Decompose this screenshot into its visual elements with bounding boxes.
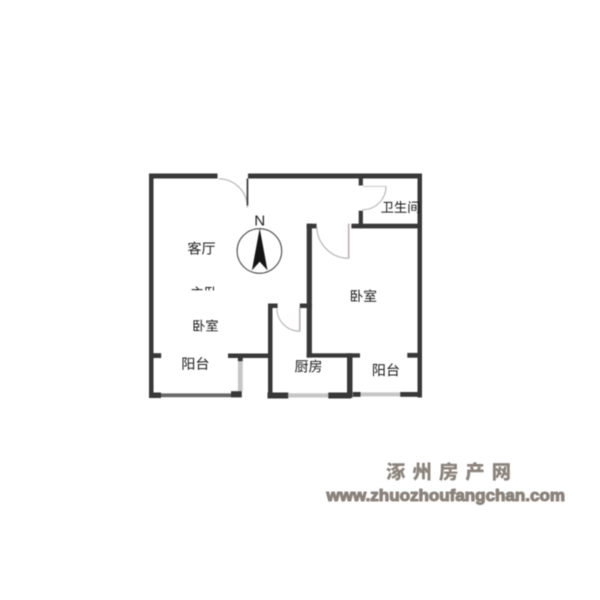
svg-text:N: N (254, 213, 265, 230)
svg-text:www.zhuozhoufangchan.com: www.zhuozhoufangchan.com (325, 487, 565, 505)
